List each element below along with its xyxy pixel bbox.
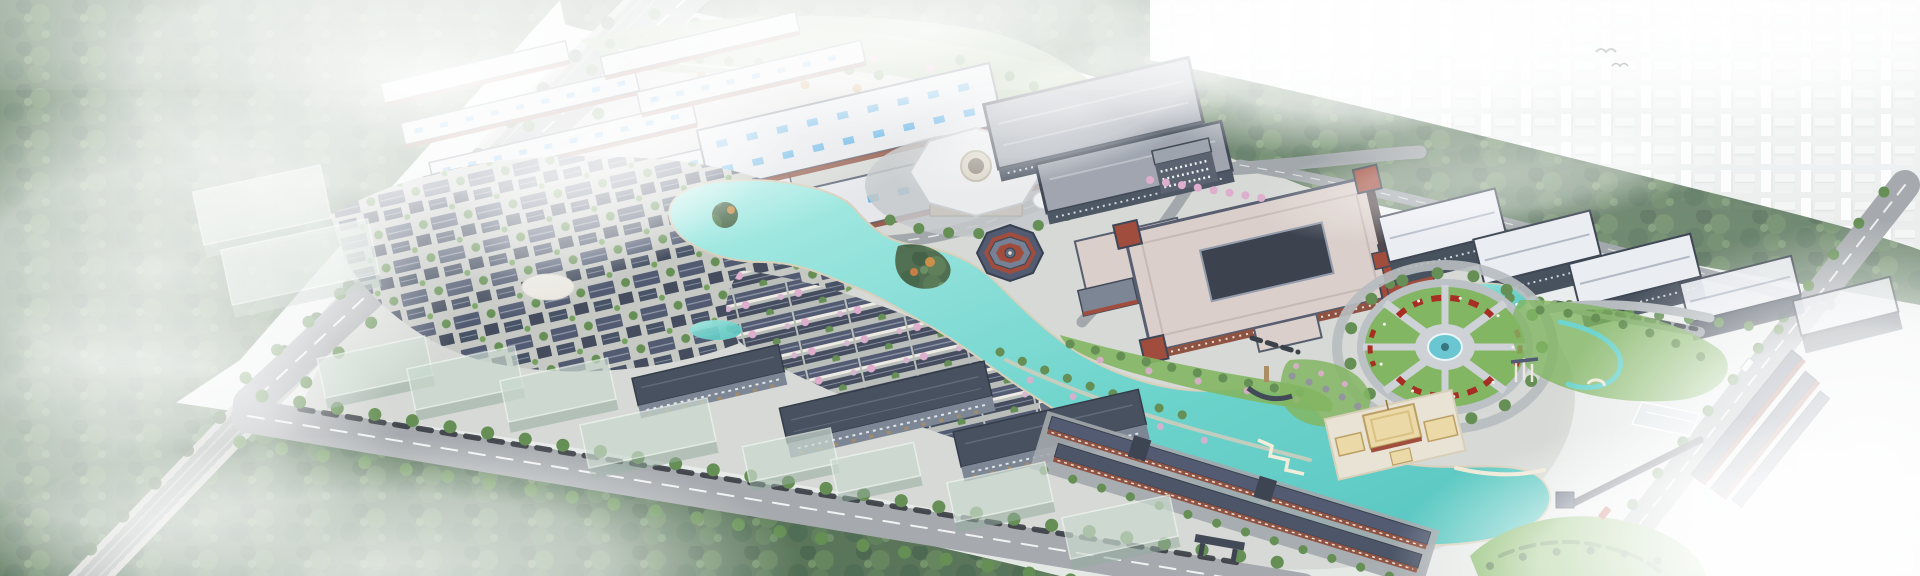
fog-clouds: [0, 0, 1920, 576]
aerial-masterplan-rendering: [0, 0, 1920, 576]
rendering-canvas: [0, 0, 1920, 576]
